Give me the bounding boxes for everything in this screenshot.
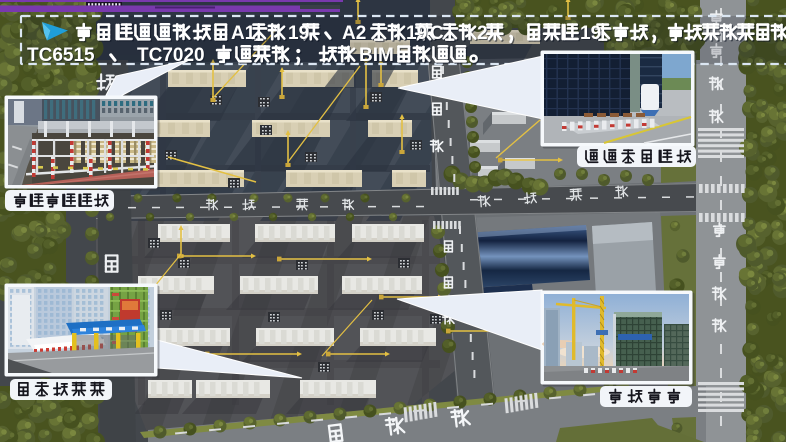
svg-text:A1: A1 (231, 23, 256, 44)
svg-text:TC6515: TC6515 (27, 45, 95, 66)
svg-text:BIM: BIM (359, 45, 394, 66)
svg-text:19: 19 (288, 23, 309, 44)
svg-text:2: 2 (477, 23, 488, 44)
svg-text:A2: A2 (342, 23, 366, 44)
svg-text:TC7020: TC7020 (137, 45, 205, 66)
svg-text:19: 19 (406, 23, 427, 44)
svg-text:19: 19 (580, 23, 601, 44)
svg-text:C: C (430, 23, 444, 44)
